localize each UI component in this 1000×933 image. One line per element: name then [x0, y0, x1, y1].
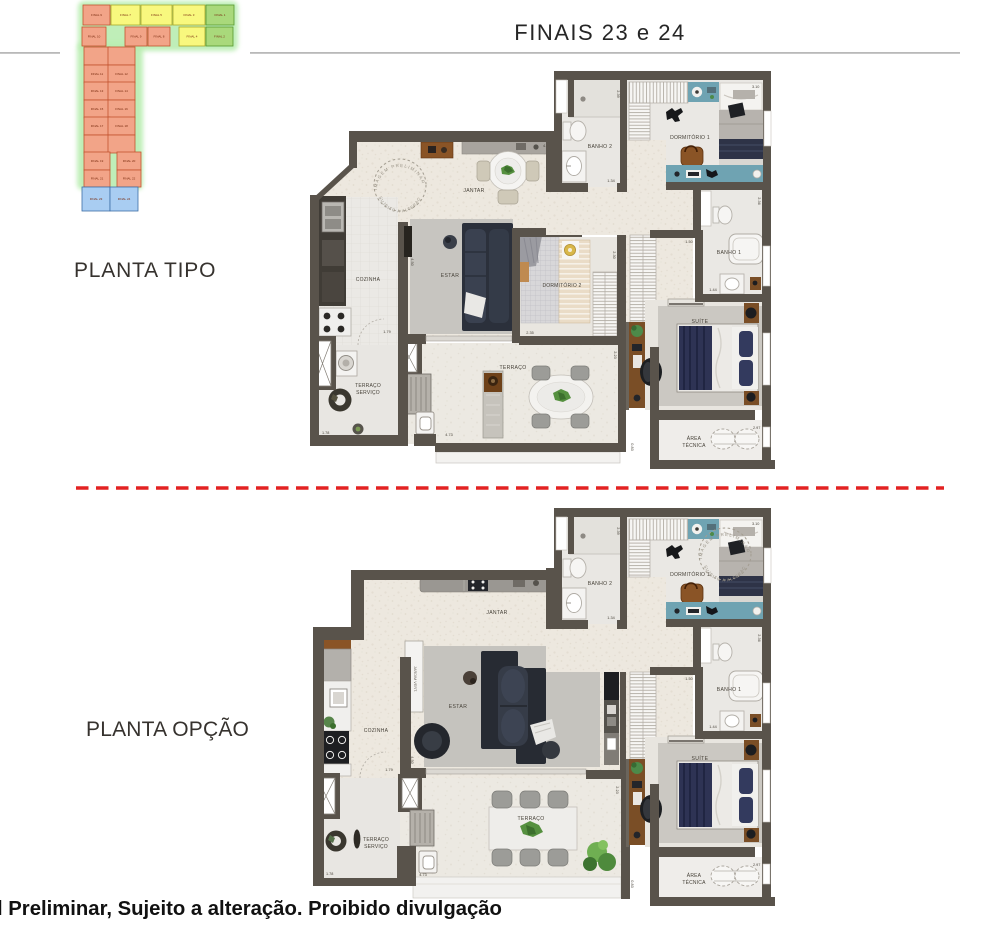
svg-text:JANTAR: JANTAR — [486, 610, 507, 616]
svg-text:DORMITÓRIO 1: DORMITÓRIO 1 — [670, 134, 710, 141]
svg-text:FINAL 13: FINAL 13 — [91, 89, 104, 93]
svg-text:FINAL 2: FINAL 2 — [214, 35, 225, 39]
svg-text:SERVIÇO: SERVIÇO — [356, 390, 380, 396]
svg-text:FINAL 8: FINAL 8 — [154, 35, 165, 39]
svg-text:1.34: 1.34 — [607, 616, 614, 620]
svg-text:SERVIÇO: SERVIÇO — [364, 844, 388, 850]
svg-text:SUÍTE: SUÍTE — [691, 318, 708, 325]
svg-text:FINAL 11: FINAL 11 — [91, 72, 104, 76]
svg-text:BANHO 2: BANHO 2 — [588, 581, 612, 587]
svg-text:1.79: 1.79 — [385, 768, 392, 772]
svg-text:FINAL 3: FINAL 3 — [184, 13, 195, 17]
svg-text:FINAL 9: FINAL 9 — [131, 35, 142, 39]
svg-text:TÉCNICA: TÉCNICA — [682, 442, 706, 449]
svg-text:FINAL 15: FINAL 15 — [91, 107, 104, 111]
svg-text:2.23: 2.23 — [613, 351, 617, 358]
svg-text:2.97: 2.97 — [753, 863, 760, 867]
svg-text:COZINHA: COZINHA — [356, 277, 381, 283]
svg-text:FINAL 24: FINAL 24 — [118, 197, 131, 201]
svg-text:FINAIS 23 e 24: FINAIS 23 e 24 — [514, 20, 685, 45]
svg-text:FINAL 22: FINAL 22 — [123, 177, 136, 181]
svg-text:3.10: 3.10 — [752, 85, 759, 89]
svg-text:2.30: 2.30 — [612, 251, 616, 258]
svg-text:FINAL 17: FINAL 17 — [91, 124, 104, 128]
svg-text:1.44: 1.44 — [709, 288, 716, 292]
svg-text:ÁREA: ÁREA — [687, 435, 702, 442]
svg-text:FINAL 16: FINAL 16 — [115, 107, 128, 111]
svg-text:FINAL 14: FINAL 14 — [115, 89, 128, 93]
svg-text:TÉCNICA: TÉCNICA — [682, 879, 706, 886]
svg-text:2.23: 2.23 — [615, 786, 619, 793]
svg-text:ÁREA: ÁREA — [687, 872, 702, 879]
svg-text:FINAL 9: FINAL 9 — [91, 13, 102, 17]
svg-text:4.73: 4.73 — [445, 433, 452, 437]
svg-text:3.10: 3.10 — [752, 522, 759, 526]
svg-text:TERRAÇO: TERRAÇO — [355, 383, 381, 389]
svg-text:ESTAR: ESTAR — [449, 704, 468, 710]
svg-text:TERRAÇO: TERRAÇO — [499, 365, 526, 371]
svg-text:0.83: 0.83 — [630, 880, 634, 887]
svg-text:1.50: 1.50 — [685, 677, 692, 681]
svg-text:ESTAR: ESTAR — [441, 273, 460, 279]
svg-text:TERRAÇO: TERRAÇO — [363, 837, 389, 843]
svg-text:1.79: 1.79 — [383, 330, 390, 334]
svg-text:1.78: 1.78 — [322, 431, 329, 435]
svg-text:FINAL 7: FINAL 7 — [120, 13, 131, 17]
svg-text:1.34: 1.34 — [607, 179, 614, 183]
svg-text:2.35: 2.35 — [526, 331, 533, 335]
svg-text:2.39: 2.39 — [616, 527, 620, 534]
svg-text:FINAL 1: FINAL 1 — [215, 13, 226, 17]
svg-text:4.73: 4.73 — [419, 873, 426, 877]
svg-text:4.50: 4.50 — [410, 258, 414, 265]
svg-text:PLANTA TIPO: PLANTA TIPO — [74, 259, 216, 282]
svg-text:DORMITÓRIO 2: DORMITÓRIO 2 — [542, 282, 581, 289]
svg-text:FINAL 18: FINAL 18 — [115, 124, 128, 128]
svg-text:l Preliminar, Sujeito a altera: l Preliminar, Sujeito a alteração. Proib… — [0, 898, 502, 920]
svg-text:TERRAÇO: TERRAÇO — [517, 816, 544, 822]
svg-text:JARDIM VERT.: JARDIM VERT. — [413, 666, 417, 692]
svg-text:2.36: 2.36 — [757, 197, 761, 204]
svg-text:JANTAR: JANTAR — [463, 188, 484, 194]
svg-text:FINAL 23: FINAL 23 — [90, 197, 103, 201]
svg-text:FINAL 19: FINAL 19 — [91, 159, 104, 163]
svg-text:1.44: 1.44 — [709, 725, 716, 729]
svg-text:2.36: 2.36 — [757, 634, 761, 641]
svg-text:BANHO 2: BANHO 2 — [588, 144, 612, 150]
svg-text:BANHO 1: BANHO 1 — [717, 250, 741, 256]
svg-text:FINAL 5: FINAL 5 — [151, 13, 162, 17]
svg-text:2.97: 2.97 — [753, 426, 760, 430]
svg-text:1.50: 1.50 — [685, 240, 692, 244]
svg-text:FINAL 21: FINAL 21 — [91, 177, 104, 181]
svg-text:FINAL 20: FINAL 20 — [123, 159, 136, 163]
svg-text:FINAL 10: FINAL 10 — [88, 35, 101, 39]
svg-text:1.78: 1.78 — [326, 872, 333, 876]
svg-text:BANHO 1: BANHO 1 — [717, 687, 741, 693]
svg-text:COZINHA: COZINHA — [364, 728, 389, 734]
svg-text:2.39: 2.39 — [616, 90, 620, 97]
svg-text:PLANTA OPÇÃO: PLANTA OPÇÃO — [86, 717, 249, 741]
svg-text:FINAL 4: FINAL 4 — [187, 35, 198, 39]
svg-text:0.83: 0.83 — [630, 443, 634, 450]
svg-text:FINAL 12: FINAL 12 — [115, 72, 128, 76]
svg-text:SUÍTE: SUÍTE — [691, 755, 708, 762]
svg-text:DORMITÓRIO 1: DORMITÓRIO 1 — [670, 571, 710, 578]
